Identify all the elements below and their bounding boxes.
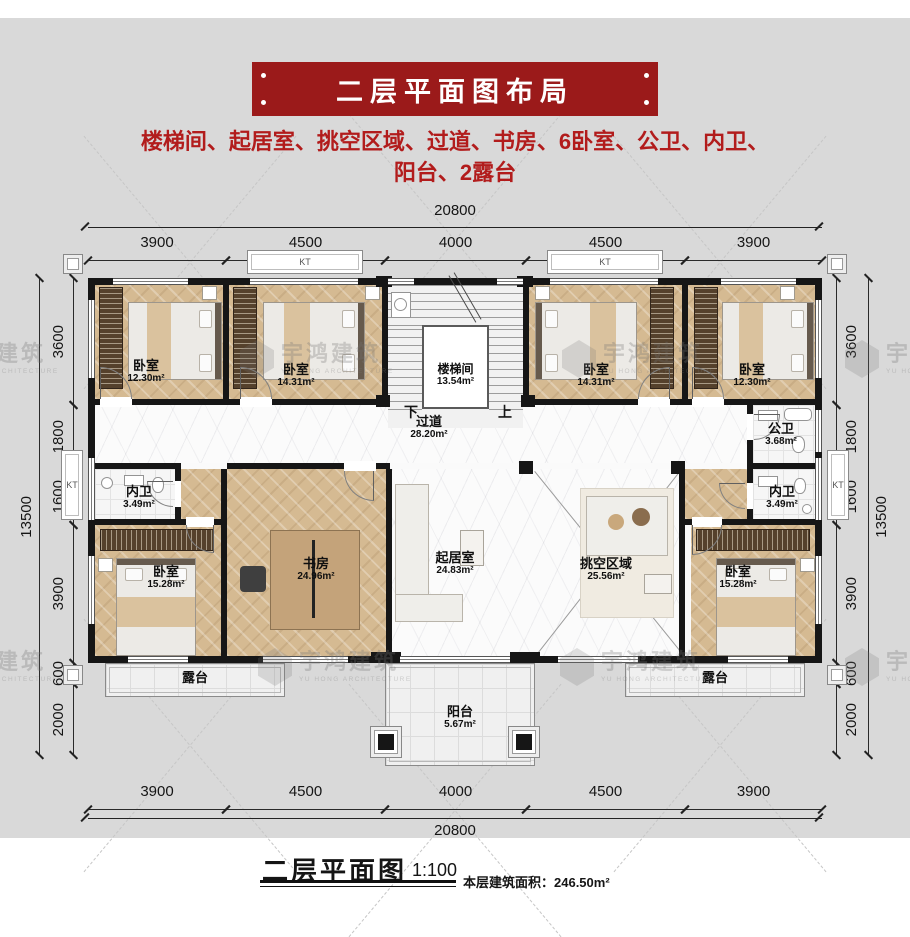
dim-right-total: 13500	[868, 278, 894, 755]
column	[510, 652, 540, 663]
caption-scale: 1:100	[412, 860, 457, 881]
wall	[523, 278, 529, 399]
headboard	[358, 303, 364, 379]
dim-segment: 3900	[836, 525, 866, 663]
window	[721, 278, 796, 285]
balcony-column	[378, 734, 394, 750]
window	[815, 556, 822, 624]
bathtub	[784, 408, 812, 421]
nightstand	[535, 286, 550, 300]
room-label-terrace: 露台	[660, 670, 770, 685]
kt-platform: KT	[247, 250, 363, 274]
wall	[227, 463, 344, 469]
dim-bottom-total: 20800	[88, 818, 822, 839]
wall	[95, 399, 382, 405]
room-label-bedroom: 卧室15.28m²	[118, 564, 214, 591]
entry-floor	[181, 469, 221, 519]
room-label-bedroom: 卧室15.28m²	[688, 564, 788, 591]
window	[497, 278, 523, 285]
column	[521, 395, 535, 407]
dim-bottom-segments: 3900 4500 4000 4500 3900	[88, 783, 822, 810]
kt-platform: KT	[61, 450, 83, 520]
room-label-balcony: 阳台5.67m²	[405, 704, 515, 731]
dim-segment: 3900	[44, 525, 74, 663]
wall	[682, 278, 688, 399]
dim-segment: 3600	[836, 278, 866, 405]
page-title: 二层平面图布局	[336, 70, 574, 109]
dim-left-total: 13500	[14, 278, 40, 755]
window	[400, 656, 510, 663]
pillow	[199, 310, 212, 328]
nightstand	[202, 286, 217, 300]
caption-underline	[260, 880, 456, 883]
stair-treads	[388, 329, 422, 413]
column	[519, 461, 533, 474]
dim-segment: 4500	[226, 783, 385, 810]
window	[128, 656, 188, 663]
banner-dot	[261, 73, 266, 78]
title-banner: 二层平面图布局	[252, 62, 658, 116]
room-label-bedroom: 卧室14.31m²	[546, 362, 646, 389]
window	[815, 410, 822, 452]
balcony-column	[516, 734, 532, 750]
banner-dot	[644, 100, 649, 105]
dim-segment: 3900	[88, 783, 226, 810]
wall	[95, 463, 181, 469]
dim-top-segments: 3900 4500 4000 4500 3900	[88, 234, 822, 261]
wall	[747, 463, 822, 469]
window	[88, 300, 95, 378]
floor-plan: 楼梯间 13.54m² 下 上	[88, 278, 822, 778]
headboard	[807, 303, 813, 379]
stair-fixture-knob	[394, 298, 407, 311]
corner-post	[63, 665, 83, 685]
dim-line	[88, 227, 822, 228]
dim-segment: 4000	[385, 783, 526, 810]
cushion	[632, 508, 650, 526]
blanket	[717, 597, 795, 627]
nightstand	[780, 286, 795, 300]
column	[371, 652, 401, 663]
room-label-corridor: 过道28.20m²	[384, 414, 474, 441]
pillow	[545, 310, 558, 328]
nightstand	[365, 286, 380, 300]
window	[728, 656, 788, 663]
dim-segment: 13500	[14, 278, 40, 755]
pillow	[342, 310, 355, 328]
column	[671, 461, 685, 474]
kt-platform: KT	[827, 450, 849, 520]
dim-segment: 13500	[868, 278, 894, 755]
pillow	[199, 354, 212, 372]
headboard	[536, 303, 542, 379]
room-label-bath: 内卫3.49m²	[104, 484, 174, 511]
cushion	[608, 514, 624, 530]
subtitle-line1: 楼梯间、起居室、挑空区域、过道、书房、6卧室、公卫、内卫、	[141, 129, 769, 154]
corner-post	[63, 254, 83, 274]
room-label-study: 书房24.96m²	[256, 556, 376, 583]
sofa-below	[586, 496, 668, 556]
dim-segment: 2000	[836, 684, 866, 755]
subtitle: 楼梯间、起居室、挑空区域、过道、书房、6卧室、公卫、内卫、 阳台、2露台	[0, 126, 910, 188]
wall	[529, 399, 815, 405]
room-label-void: 挑空区域25.56m²	[528, 556, 684, 583]
room-label-bedroom: 卧室12.30m²	[96, 358, 196, 385]
kt-platform: KT	[547, 250, 663, 274]
door-gap	[175, 481, 181, 507]
pillow	[791, 310, 804, 328]
window	[263, 656, 348, 663]
window	[88, 556, 95, 624]
dim-segment: 3900	[685, 234, 822, 261]
caption-floor-area: 本层建筑面积：246.50m²	[463, 872, 610, 891]
window	[388, 278, 414, 285]
dim-segment: 2000	[44, 684, 74, 755]
dim-segment: 3900	[88, 234, 226, 261]
window	[815, 300, 822, 378]
dim-segment: 3900	[685, 783, 822, 810]
stair-up-label: 上	[498, 402, 512, 422]
corner-post	[827, 665, 847, 685]
nightstand	[98, 558, 113, 572]
room-label-living: 起居室24.83m²	[390, 550, 520, 577]
banner-dot	[261, 100, 266, 105]
door-gap	[344, 461, 376, 471]
window	[250, 278, 358, 285]
nightstand	[800, 558, 815, 572]
column	[376, 395, 390, 407]
dim-segment: 3600	[44, 278, 74, 405]
stair-treads	[489, 329, 523, 413]
wall	[223, 278, 229, 399]
window	[113, 278, 188, 285]
headboard	[215, 303, 221, 379]
subtitle-line2: 阳台、2露台	[394, 160, 516, 185]
room-label-terrace: 露台	[140, 670, 250, 685]
room-label-bath: 公卫3.68m²	[749, 421, 813, 448]
room-label-bedroom: 卧室12.30m²	[700, 362, 804, 389]
dim-segment: 4500	[526, 783, 685, 810]
room-label-bath: 内卫3.49m²	[747, 484, 817, 511]
wall	[221, 469, 227, 663]
sofa-chaise	[395, 594, 463, 622]
blanket	[117, 597, 195, 627]
window	[550, 278, 658, 285]
window	[558, 656, 638, 663]
caption-underline	[260, 886, 456, 887]
banner-dot	[644, 73, 649, 78]
wall	[382, 278, 388, 399]
room-label-bedroom: 卧室14.31m²	[246, 362, 346, 389]
window	[88, 458, 95, 520]
corner-post	[827, 254, 847, 274]
dim-segment: 4000	[385, 234, 526, 261]
dim-top-total: 20800	[88, 202, 822, 219]
room-label-stair: 楼梯间 13.54m²	[422, 362, 489, 388]
